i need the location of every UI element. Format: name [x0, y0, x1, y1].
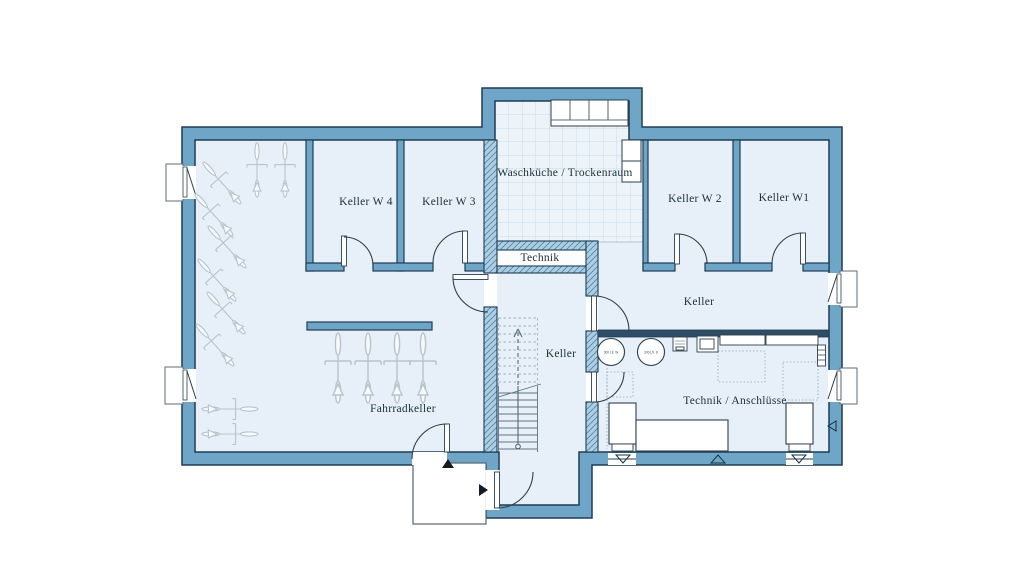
window-right-1	[828, 271, 857, 307]
room-label-fahrradkeller: Fahrradkeller	[370, 403, 436, 415]
room-label-technik: Technik	[521, 252, 560, 264]
room-label-keller-mitte: Keller	[546, 348, 577, 360]
equipment-box-left	[609, 403, 636, 444]
workbench	[636, 420, 728, 451]
cabinet-row	[551, 100, 628, 126]
tank-label-1: 300 Ltr. W	[604, 351, 619, 355]
room-label-keller-rechts: Keller	[684, 296, 715, 308]
room-label-technik-anschluesse: Technik / Anschlüsse	[683, 395, 787, 407]
counter-1	[720, 335, 765, 345]
room-label-keller-w1: Keller W1	[759, 192, 810, 204]
window-left-1	[166, 164, 196, 201]
meter-box	[818, 345, 826, 366]
room-label-keller-w4: Keller W 4	[339, 196, 393, 208]
control-box	[673, 337, 687, 351]
window-left-2	[165, 367, 196, 404]
equipment-foot-right	[789, 444, 810, 451]
bike-room-partition	[307, 322, 432, 330]
sink	[697, 336, 718, 352]
equipment-box-right	[786, 403, 813, 444]
room-label-waschkueche: Waschküche / Trockenraum	[497, 167, 632, 179]
room-label-keller-w2: Keller W 2	[668, 193, 722, 205]
equipment-foot-left	[612, 444, 633, 451]
counter-2	[766, 335, 818, 345]
window-right-2	[828, 368, 857, 404]
floor-plan-page: 300 Ltr. W 300 Ltr. S	[0, 0, 1024, 576]
washing-machine	[622, 140, 641, 161]
room-label-keller-w3: Keller W 3	[422, 196, 476, 208]
floor-plan-svg: 300 Ltr. W 300 Ltr. S	[0, 0, 1024, 576]
tank-label-2: 300 Ltr. S	[644, 351, 658, 355]
exterior-entrance-well	[413, 463, 486, 524]
